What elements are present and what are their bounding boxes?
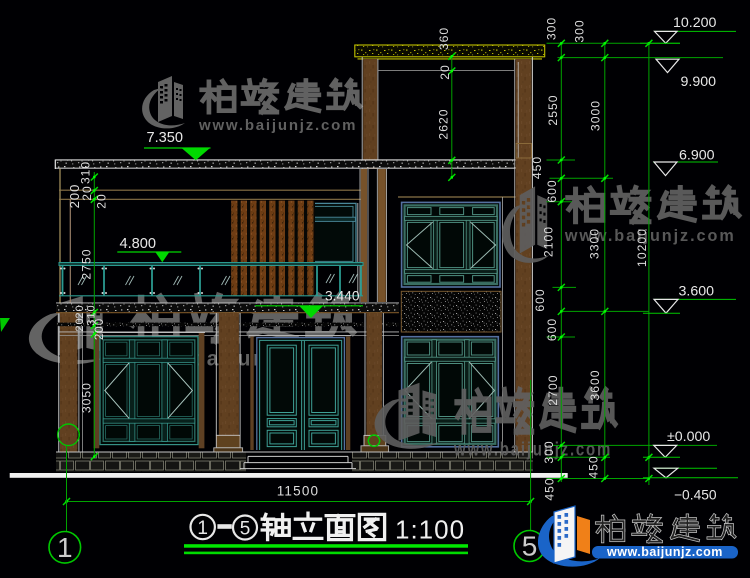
svg-text:2750: 2750 <box>80 248 94 279</box>
svg-text:10200: 10200 <box>635 228 649 267</box>
svg-text:www.baijunjz.com: www.baijunjz.com <box>606 545 723 559</box>
svg-text:3050: 3050 <box>79 382 93 413</box>
svg-text:10.200: 10.200 <box>673 15 717 31</box>
svg-text:600: 600 <box>533 288 547 311</box>
svg-text:5: 5 <box>522 531 538 562</box>
svg-text:20: 20 <box>438 64 452 80</box>
svg-text:9.900: 9.900 <box>681 74 717 90</box>
svg-text:310: 310 <box>79 161 93 184</box>
svg-text:4.800: 4.800 <box>120 236 157 252</box>
svg-text:600: 600 <box>545 179 559 202</box>
svg-text:20: 20 <box>95 193 109 208</box>
svg-text:5: 5 <box>240 519 251 540</box>
svg-text:3.440: 3.440 <box>325 289 360 304</box>
svg-text:300: 300 <box>542 440 556 463</box>
svg-text:3000: 3000 <box>589 100 603 131</box>
svg-text:1: 1 <box>57 532 73 563</box>
svg-text:600: 600 <box>545 318 559 341</box>
svg-text:2550: 2550 <box>546 94 560 125</box>
svg-text:1: 1 <box>197 518 208 539</box>
svg-text:360: 360 <box>437 27 451 50</box>
svg-text:450: 450 <box>587 455 601 478</box>
svg-text:2620: 2620 <box>437 108 451 139</box>
svg-text:300: 300 <box>545 17 559 40</box>
svg-text:20: 20 <box>74 317 86 331</box>
svg-text:20: 20 <box>80 185 94 200</box>
svg-text:450: 450 <box>543 477 557 500</box>
svg-text:3300: 3300 <box>588 228 602 259</box>
svg-text:200: 200 <box>94 318 106 340</box>
svg-text:20: 20 <box>74 304 86 318</box>
svg-text:±0.000: ±0.000 <box>667 429 710 445</box>
svg-text:11500: 11500 <box>277 484 320 499</box>
svg-text:2100: 2100 <box>542 226 556 257</box>
svg-text:300: 300 <box>573 19 587 42</box>
svg-text:3600: 3600 <box>588 369 602 400</box>
svg-text:450: 450 <box>530 156 544 179</box>
svg-text:6.900: 6.900 <box>679 148 715 164</box>
svg-text:7.350: 7.350 <box>147 130 184 146</box>
svg-text:1:100: 1:100 <box>395 515 465 545</box>
svg-text:2700: 2700 <box>546 374 560 405</box>
svg-text:3.600: 3.600 <box>679 284 715 300</box>
svg-text:−0.450: −0.450 <box>674 488 717 503</box>
